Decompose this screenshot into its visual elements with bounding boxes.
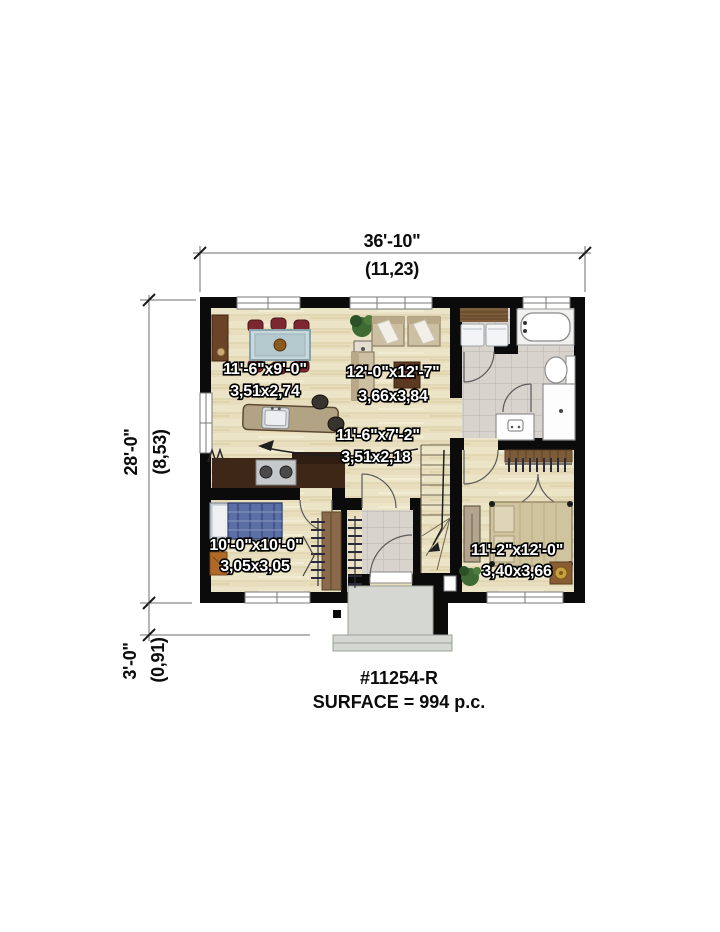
plan-number: #11254-R — [360, 668, 438, 688]
sidelight-window — [444, 576, 456, 591]
dimension-porch: 3'-0" (0,91) — [120, 603, 310, 683]
pillow-1 — [494, 506, 514, 532]
sideboard-bowl — [217, 348, 225, 356]
nightstand — [550, 562, 572, 584]
floor-plan-page: 36'-10" (11,23) 28'-0" (8,53) 3'-0" (0,9… — [0, 0, 720, 932]
bed-front — [210, 503, 282, 539]
porch-step-2 — [333, 643, 452, 651]
burner-2 — [280, 466, 292, 478]
bar-stool-1 — [312, 395, 328, 409]
wall-closet-back — [341, 510, 347, 592]
floor-plan-drawing: 36'-10" (11,23) 28'-0" (8,53) 3'-0" (0,9… — [0, 0, 720, 932]
room-label-bedroom-rear-imperial: 11'-2"x12'-0" — [471, 542, 563, 559]
porch-post — [333, 610, 341, 618]
bedroom-rear-window — [487, 592, 563, 603]
toilet — [545, 356, 575, 384]
dimension-height-metric: (8,53) — [150, 429, 170, 475]
wall-hall-entry-b — [410, 498, 421, 510]
wall-kitchen-bedroom-a — [200, 488, 300, 500]
wall-bath-bottom-left — [450, 438, 464, 450]
dimension-width-metric: (11,23) — [365, 259, 419, 279]
dining-window — [237, 297, 300, 309]
kitchen-side-window — [200, 393, 212, 453]
washer — [461, 324, 484, 346]
bed-post — [489, 501, 495, 507]
pillow — [212, 505, 228, 537]
vanity — [543, 384, 575, 440]
room-label-dining-metric: 3,51x2,74 — [230, 383, 300, 400]
bathroom-window — [523, 297, 570, 309]
table-centerpiece — [274, 339, 286, 351]
bathroom-sink-cabinet — [496, 414, 534, 440]
room-label-living-metric: 3,66x3,84 — [358, 388, 428, 405]
dimension-height-imperial: 28'-0" — [121, 428, 141, 475]
dimension-porch-imperial: 3'-0" — [120, 642, 140, 679]
dimension-height: 28'-0" (8,53) — [121, 294, 196, 609]
loveseat-2 — [408, 317, 440, 346]
room-label-bedroom-front-metric: 3,05x3,05 — [220, 558, 290, 575]
room-label-dining-imperial: 11'-6"x9'-0" — [223, 361, 307, 378]
stairs — [421, 445, 450, 573]
porch-step-1 — [333, 635, 452, 643]
loveseat-1 — [372, 317, 404, 346]
room-label-bedroom-front-imperial: 10'-0"x10'-0" — [209, 537, 302, 554]
surface-label: SURFACE = 994 p.c. — [313, 692, 486, 712]
room-label-bedroom-rear-metric: 3,40x3,66 — [482, 563, 552, 580]
wall-entry-stairs — [413, 510, 421, 573]
dimension-width-imperial: 36'-10" — [364, 231, 421, 251]
burner-1 — [260, 466, 272, 478]
plan-footer: #11254-R SURFACE = 994 p.c. — [313, 668, 486, 712]
wall-hall-entry-a — [332, 498, 362, 510]
vanity-drain — [559, 409, 563, 413]
laundry-shelf — [460, 308, 508, 322]
plant-leaf-1 — [350, 315, 362, 327]
room-label-living-imperial: 12'-0"x12'-7" — [346, 364, 439, 381]
bedroom-front-window — [245, 592, 310, 603]
front-door — [370, 572, 412, 583]
porch-landing — [348, 586, 433, 635]
bathtub — [517, 309, 574, 345]
room-label-hall-imperial: 11'-6"x7'-2" — [336, 427, 420, 444]
room-label-hall-metric: 3,51x2,18 — [341, 449, 411, 466]
living-window — [350, 297, 432, 309]
dryer — [486, 324, 508, 346]
entry-tile-floor — [362, 510, 413, 574]
bed-post — [567, 501, 573, 507]
bedroom-rear-door-opening — [464, 438, 498, 450]
tub-faucet — [523, 321, 527, 325]
dimension-porch-metric: (0,91) — [148, 637, 168, 683]
dimension-width: 36'-10" (11,23) — [193, 231, 591, 292]
side-table-dot — [361, 347, 365, 351]
